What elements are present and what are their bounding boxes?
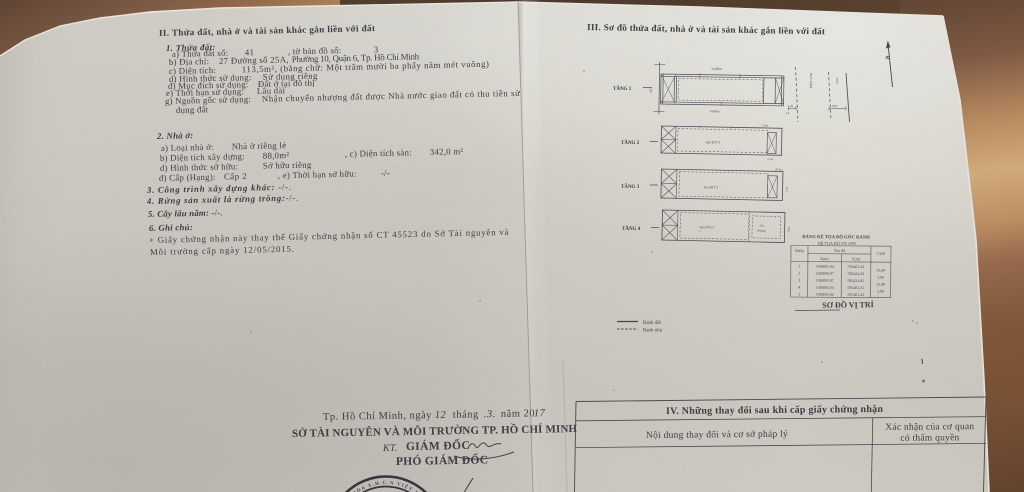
svg-text:Sàn BTCT: Sàn BTCT [704,185,720,189]
svg-text:1188005.04: 1188005.04 [815,265,833,269]
svg-text:14,40m: 14,40m [711,67,722,72]
svg-text:4,5m: 4,5m [835,77,840,84]
svg-text:TẦNG 3: TẦNG 3 [621,184,640,190]
svg-text:595401.25: 595401.25 [847,286,864,290]
svg-text:TẦNG 2: TẦNG 2 [621,140,640,146]
svg-text:1188004.04: 1188004.04 [815,286,833,290]
svg-text:Tọa độ: Tọa độ [834,248,845,253]
svg-text:22.80: 22.80 [876,283,885,287]
svg-text:Cạnh: Cạnh [877,251,885,256]
svg-text:595424.05: 595424.05 [847,279,864,283]
svg-text:1188003.87: 1188003.87 [815,279,833,283]
svg-text:2,5m: 2,5m [767,157,774,161]
svg-text:HỆ TỌA ĐỘ VN 2000: HỆ TỌA ĐỘ VN 2000 [818,241,857,246]
svg-text:SƠ ĐỒ VỊ TRÍ: SƠ ĐỒ VỊ TRÍ [822,299,874,310]
svg-text:Sân: Sân [760,224,765,228]
svg-text:1: 1 [798,293,800,297]
svg-text:1188005.04: 1188005.04 [815,293,833,297]
svg-text:3: 3 [798,279,800,283]
svg-text:Ranh nhà: Ranh nhà [643,329,663,334]
svg-text:595401.43: 595401.43 [847,293,864,297]
svg-text:Sàn BTCT: Sàn BTCT [700,225,716,229]
svg-text:3,1m: 3,1m [785,186,789,193]
svg-text:Y(m): Y(m) [852,256,861,261]
svg-text:Sàn BTCT: Sàn BTCT [706,140,722,144]
svg-text:4,6: 4,6 [649,88,654,93]
svg-text:1,4: 1,4 [785,111,789,116]
svg-text:2: 2 [798,272,800,276]
svg-text:TẦNG 1: TẦNG 1 [613,86,632,92]
svg-text:HẺM 4,5m: HẺM 4,5m [808,72,814,88]
svg-text:B: B [885,55,892,60]
svg-text:Ranh đất: Ranh đất [643,321,662,326]
svg-text:thượng: thượng [757,228,766,232]
svg-text:595424.28: 595424.28 [848,272,865,276]
svg-text:4,60: 4,60 [832,104,838,108]
svg-text:5.00: 5.00 [877,276,884,280]
svg-text:595401.43: 595401.43 [848,265,865,269]
svg-text:BẢNG KÊ TỌA ĐỘ GÓC RANH: BẢNG KÊ TỌA ĐỘ GÓC RANH [802,234,870,240]
svg-text:Điểm: Điểm [795,248,805,253]
svg-text:1: 1 [798,265,800,269]
svg-text:TẦNG 4: TẦNG 4 [622,226,641,232]
svg-text:4: 4 [798,286,800,290]
svg-text:1188008.87: 1188008.87 [815,272,833,276]
svg-text:14,40m: 14,40m [709,109,720,114]
svg-text:1,40: 1,40 [788,104,794,108]
svg-text:5.00: 5.00 [877,290,884,294]
svg-text:22.60: 22.60 [876,269,885,273]
svg-text:3,0m: 3,0m [787,226,791,233]
svg-text:X(m): X(m) [820,256,829,261]
